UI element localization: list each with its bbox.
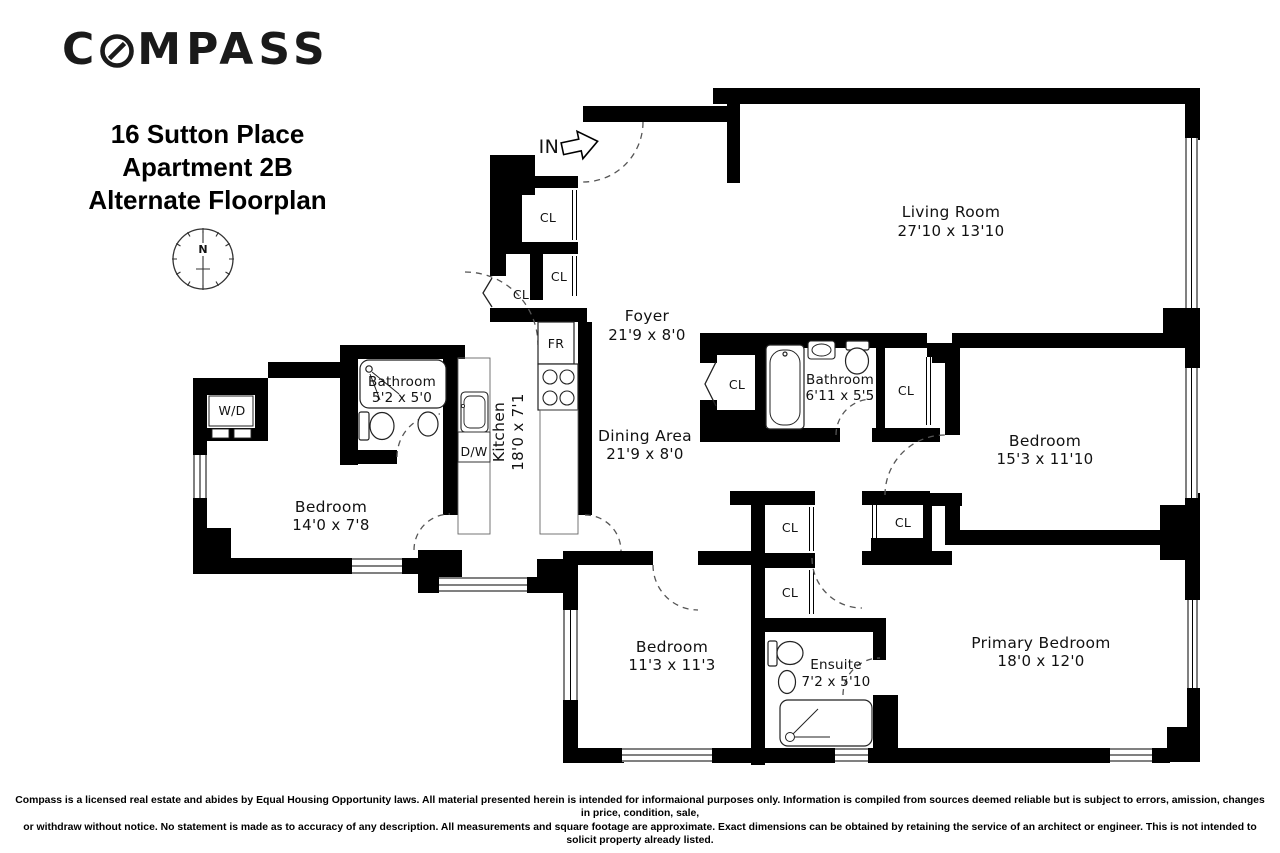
refrigerator-label: FR xyxy=(548,336,564,351)
primary-bedroom-name-label: Primary Bedroom xyxy=(971,634,1110,652)
bathroom-center-name-label: Bathroom xyxy=(806,372,874,388)
foyer-name-label: Foyer xyxy=(625,307,670,325)
bedroom-west-dims-label: 14'0 x 7'8 xyxy=(292,516,369,534)
bathroom-center-dims-label: 6'11 x 5'5 xyxy=(806,388,875,404)
window-bedroom-west-south xyxy=(352,558,402,574)
closet-label-hall-3: CL xyxy=(895,515,911,530)
bedroom-south-dims-label: 11'3 x 11'3 xyxy=(628,656,715,674)
window-bedroom-south-left xyxy=(563,610,578,700)
toilet-west xyxy=(359,412,394,440)
closet-label-hall-2: CL xyxy=(782,585,798,600)
primary-bedroom-door-arc xyxy=(812,558,862,608)
dishwasher-label: D/W xyxy=(460,444,487,459)
compass-rose-north-label: N xyxy=(198,243,207,256)
dining-area-dims-label: 21'9 x 8'0 xyxy=(606,445,683,463)
shower-ensuite xyxy=(780,700,872,746)
in-arrow-icon xyxy=(559,128,600,163)
kitchen-counter-east xyxy=(540,410,578,534)
window-primary-east xyxy=(1187,600,1198,688)
window-bedroom-east xyxy=(1185,368,1198,498)
sink-ensuite xyxy=(779,671,796,694)
bedroom-west-name-label: Bedroom xyxy=(295,498,367,516)
kitchen-dims-label: 18'0 x 7'1 xyxy=(509,393,527,470)
in-label: IN xyxy=(539,136,560,158)
kitchen-name-label: Kitchen xyxy=(490,402,508,462)
floorplan-page: C MPASS 16 Sutton Place Apartment 2B Alt… xyxy=(0,0,1280,853)
window-bedroom-south-bottom xyxy=(622,748,712,762)
bedroom-east-name-label: Bedroom xyxy=(1009,432,1081,450)
bathroom-west-name-label: Bathroom xyxy=(368,374,436,390)
bathtub-center xyxy=(766,345,804,429)
sliding-door-foyer-cl1 xyxy=(571,190,578,240)
bedroom-east-door-arc xyxy=(885,435,945,495)
kitchen-south-door-arc xyxy=(585,515,621,551)
living-room-name-label: Living Room xyxy=(902,203,1000,221)
entry-door-arc xyxy=(583,122,643,182)
window-ensuite-south xyxy=(835,748,868,762)
bedroom-east-dims-label: 15'3 x 11'10 xyxy=(996,450,1093,468)
dining-area-name-label: Dining Area xyxy=(598,427,692,445)
closet-label-hall-1: CL xyxy=(782,520,798,535)
closet-label-bath-east: CL xyxy=(898,383,914,398)
primary-bedroom-dims-label: 18'0 x 12'0 xyxy=(997,652,1084,670)
kitchen-sink xyxy=(461,392,488,432)
stove xyxy=(538,364,578,410)
closet-label-foyer-3: CL xyxy=(513,287,529,302)
sink-west xyxy=(418,412,438,436)
bedroom-south-name-label: Bedroom xyxy=(636,638,708,656)
bathroom-center-door-arc xyxy=(836,399,872,435)
window-primary-south xyxy=(1110,748,1152,762)
window-bedroom-west-left xyxy=(193,455,207,498)
closet-label-dining: CL xyxy=(729,377,745,392)
sliding-door-hall-cl2 xyxy=(808,570,815,614)
fixtures-layer xyxy=(209,322,872,746)
sliding-door-foyer-cl2 xyxy=(571,256,578,296)
window-kitchen-south xyxy=(439,577,527,593)
washer-dryer-label: W/D xyxy=(218,403,245,418)
disclaimer-line-1: Compass is a licensed real estate and ab… xyxy=(15,794,1265,821)
foyer-dims-label: 21'9 x 8'0 xyxy=(608,326,685,344)
bedroom-south-door-arc xyxy=(653,565,698,610)
room-labels-layer: Living Room 27'10 x 13'10 Foyer 21'9 x 8… xyxy=(292,203,1110,690)
toilet-center xyxy=(846,341,870,374)
bifold-door-dining-cl xyxy=(705,362,716,406)
living-room-dims-label: 27'10 x 13'10 xyxy=(898,222,1005,240)
bedroom-west-door-arc xyxy=(414,514,450,550)
disclaimer: Compass is a licensed real estate and ab… xyxy=(15,794,1265,848)
sliding-door-hall-cl3 xyxy=(871,505,878,538)
compass-rose: N xyxy=(172,228,234,290)
floorplan-canvas: N IN Living Room 27'10 x 13'10 Foyer 21'… xyxy=(0,0,1280,853)
ensuite-dims-label: 7'2 x 5'10 xyxy=(802,674,871,690)
bifold-door-foyer-cl3 xyxy=(483,278,492,307)
ensuite-name-label: Ensuite xyxy=(810,657,861,673)
sliding-door-hall-cl1 xyxy=(808,507,815,551)
entry-indicator: IN xyxy=(539,128,601,163)
toilet-ensuite xyxy=(768,641,803,666)
bathroom-west-dims-label: 5'2 x 5'0 xyxy=(372,390,432,406)
closet-label-foyer-1: CL xyxy=(540,210,556,225)
closet-label-foyer-2: CL xyxy=(551,269,567,284)
sink-center xyxy=(808,341,835,359)
disclaimer-line-2: or withdraw without notice. No statement… xyxy=(15,821,1265,848)
window-living-east xyxy=(1185,138,1198,308)
sliding-door-bath-east-cl xyxy=(925,357,932,425)
